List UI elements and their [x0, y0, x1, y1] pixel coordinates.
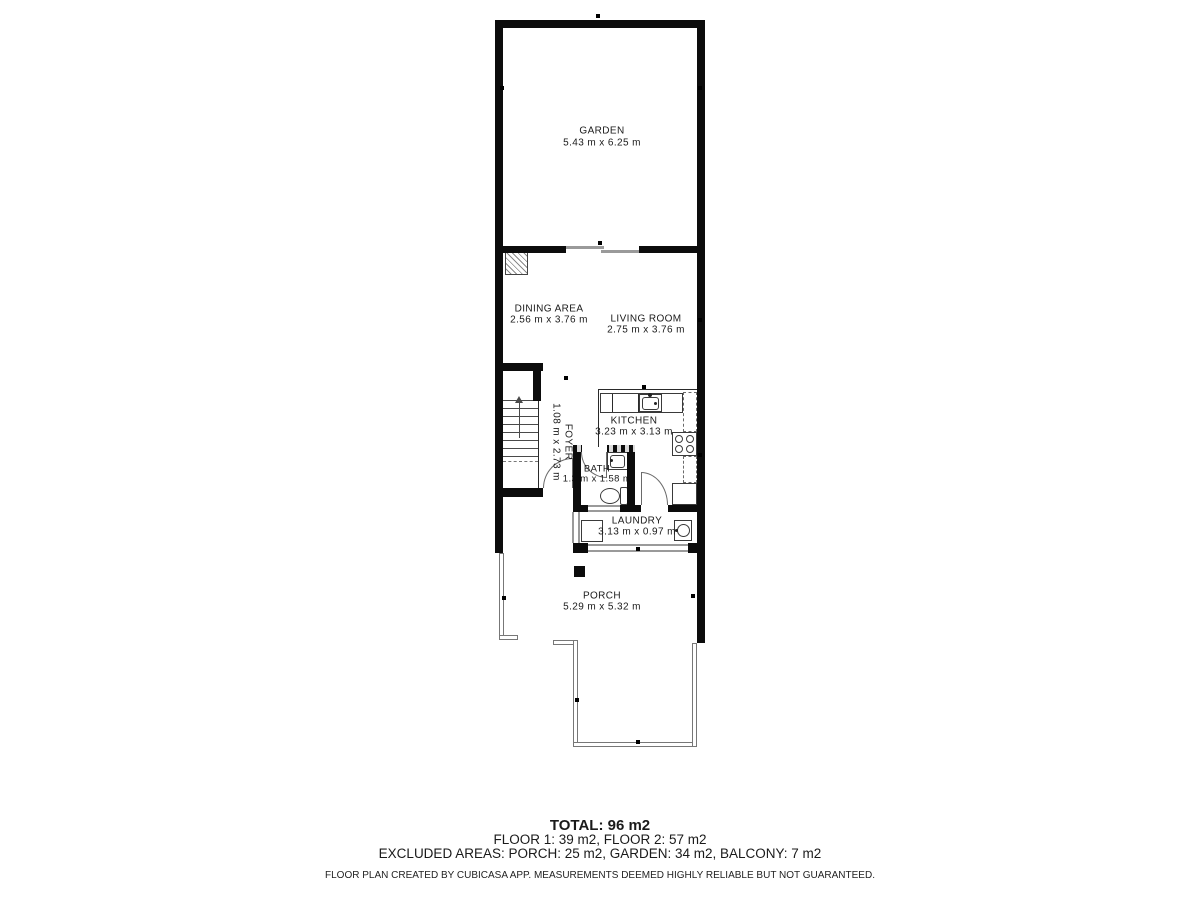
- room-dims-dining: 2.56 m x 3.76 m: [510, 315, 588, 326]
- stair-foyer-divider: [538, 401, 539, 488]
- porch-rail-left: [499, 553, 504, 637]
- burner-icon: [686, 445, 694, 453]
- watermark-pattern: [577, 444, 635, 452]
- washer-drum-icon: [677, 524, 690, 537]
- wall-right: [697, 20, 705, 643]
- room-label-living: LIVING ROOM: [610, 314, 681, 325]
- stair-tread: [503, 424, 538, 425]
- kitchen-boundary-top: [598, 389, 697, 390]
- faucet-icon: [648, 393, 652, 397]
- measure-tick: [596, 14, 600, 18]
- measure-tick: [598, 241, 602, 245]
- porch-rail-stub: [499, 635, 518, 640]
- burner-icon: [675, 445, 683, 453]
- wall-bath-left: [573, 445, 581, 512]
- room-dims-porch: 5.29 m x 5.32 m: [563, 602, 641, 613]
- burner-icon: [675, 435, 683, 443]
- laundry-door-leaf: [641, 472, 642, 505]
- measure-tick: [698, 86, 702, 90]
- bath-faucet-icon: [610, 459, 613, 462]
- summary-excluded-areas: EXCLUDED AREAS: PORCH: 25 m2, GARDEN: 34…: [0, 846, 1200, 861]
- room-label-porch: PORCH: [583, 591, 621, 602]
- room-dims-foyer: 1.08 m x 2.73 m: [551, 403, 562, 481]
- wall-laundry-top-a: [581, 505, 588, 512]
- room-dims-living: 2.75 m x 3.76 m: [607, 325, 685, 336]
- summary-disclaimer: FLOOR PLAN CREATED BY CUBICASA APP. MEAS…: [0, 870, 1200, 881]
- measure-tick: [575, 698, 579, 702]
- fireplace-flue: [505, 252, 528, 275]
- room-dims-laundry: 3.13 m x 0.97 m: [598, 527, 676, 538]
- wall-garden-bottom-left: [495, 246, 566, 253]
- porch-rail-left-lower: [573, 640, 578, 747]
- counter-divider: [638, 394, 639, 412]
- kitchen-tall-cabinet-lower: [683, 456, 697, 483]
- measure-tick: [500, 86, 504, 90]
- room-dims-garden: 5.43 m x 6.25 m: [563, 138, 641, 149]
- room-label-foyer: FOYER: [563, 424, 574, 460]
- wall-top: [495, 20, 705, 28]
- measure-tick: [636, 740, 640, 744]
- wall-laundry-top-c: [668, 505, 697, 512]
- sink-drain-icon: [654, 402, 657, 405]
- window-bath-laundry: [588, 505, 620, 512]
- wall-stair-right: [533, 363, 541, 401]
- room-label-garden: GARDEN: [579, 126, 624, 137]
- measure-tick: [698, 318, 702, 322]
- stair-tread: [503, 456, 538, 457]
- toilet-bowl: [600, 488, 620, 504]
- stair-walkline: [503, 461, 538, 462]
- measure-tick: [636, 547, 640, 551]
- room-label-dining: DINING AREA: [515, 304, 584, 315]
- wall-garden-bottom-right: [639, 246, 705, 253]
- burner-icon: [686, 435, 694, 443]
- measure-tick: [691, 594, 695, 598]
- kitchen-base-cabinet: [672, 483, 697, 505]
- porch-post: [574, 566, 585, 577]
- sliding-door-garden-left: [566, 246, 604, 249]
- wall-laundry-bottom-left: [573, 543, 588, 553]
- porch-rail-bottom: [573, 742, 697, 747]
- wall-foyer-bottom: [495, 488, 543, 497]
- stair-tread: [503, 448, 538, 449]
- wall-laundry-top-b: [620, 505, 641, 512]
- kitchen-tall-cabinet-upper: [683, 392, 697, 432]
- summary-floors: FLOOR 1: 39 m2, FLOOR 2: 57 m2: [0, 832, 1200, 847]
- porch-rail-right: [692, 643, 697, 747]
- stair-arrow-shaft: [519, 402, 520, 438]
- room-label-laundry: LAUNDRY: [612, 516, 662, 527]
- stair-tread: [503, 432, 538, 433]
- floor-plan-canvas: GARDEN 5.43 m x 6.25 m DINING AREA 2.56 …: [0, 0, 1200, 900]
- wall-left: [495, 20, 503, 553]
- measure-tick: [502, 596, 506, 600]
- room-label-kitchen: KITCHEN: [611, 416, 658, 427]
- stair-tread: [503, 408, 538, 409]
- window-laundry-left: [572, 512, 580, 543]
- measure-tick: [698, 453, 702, 457]
- stair-tread: [503, 440, 538, 441]
- measure-tick: [642, 385, 646, 389]
- sliding-door-garden-right: [601, 250, 639, 253]
- measure-tick: [564, 376, 568, 380]
- kitchen-boundary-left: [598, 389, 599, 447]
- counter-divider: [612, 394, 613, 412]
- wall-laundry-bottom-right: [688, 543, 697, 553]
- stair-tread: [503, 416, 538, 417]
- laundry-door-arc: [641, 472, 668, 505]
- wall-bath-right: [627, 445, 635, 512]
- room-dims-kitchen: 3.23 m x 3.13 m: [595, 427, 673, 438]
